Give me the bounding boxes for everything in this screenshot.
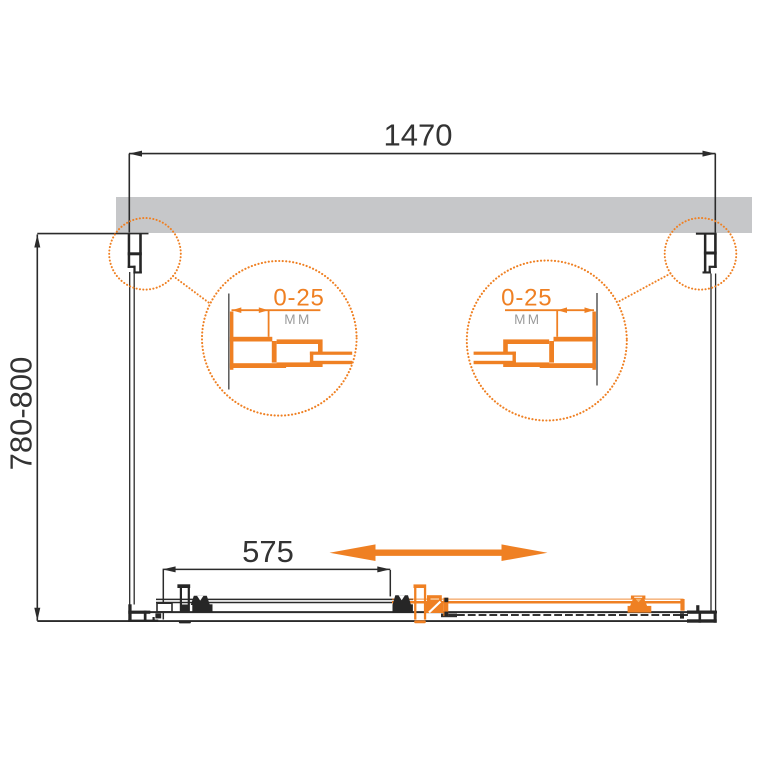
svg-text:1470: 1470: [384, 117, 453, 152]
svg-text:0-25: 0-25: [273, 285, 324, 312]
svg-text:780-800: 780-800: [4, 357, 39, 471]
svg-text:0-25: 0-25: [501, 285, 552, 312]
svg-text:575: 575: [242, 534, 294, 569]
svg-text:MM: MM: [514, 312, 541, 327]
svg-text:MM: MM: [284, 312, 311, 327]
